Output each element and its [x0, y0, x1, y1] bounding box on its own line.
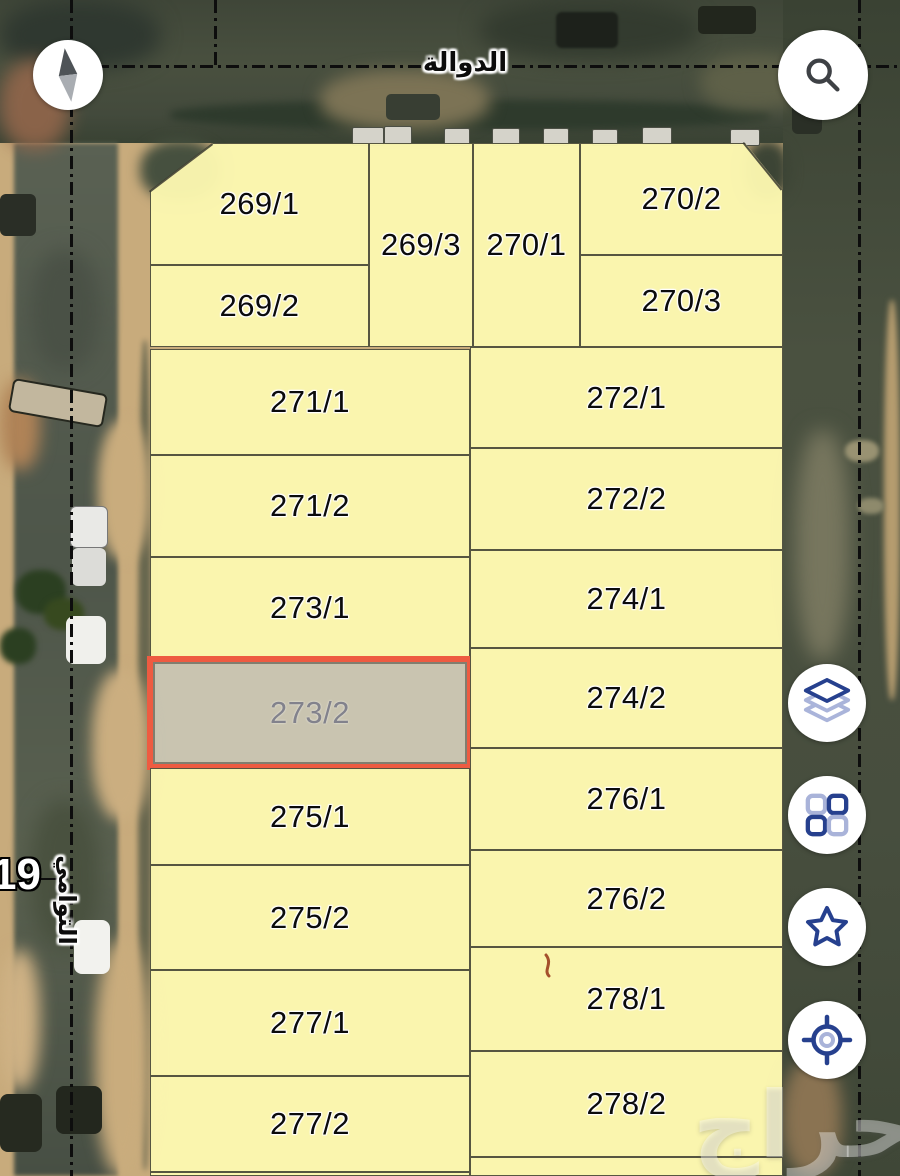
- parcel-271-2[interactable]: 271/2: [150, 455, 470, 557]
- car: [698, 6, 756, 34]
- car: [556, 12, 618, 48]
- parcel-label: 278/1: [586, 981, 666, 1017]
- boundary-line-left: [70, 0, 73, 1176]
- parcel-270-3[interactable]: 270/3: [580, 255, 783, 347]
- parcel-label: 272/1: [586, 380, 666, 416]
- parcel-label: 275/2: [270, 900, 350, 936]
- parcel-label: 277/1: [270, 1005, 350, 1041]
- parcel-273-2-selected[interactable]: 273/2: [147, 656, 473, 770]
- parcel-269-2[interactable]: 269/2: [150, 265, 369, 347]
- parcel-label: 274/2: [586, 680, 666, 716]
- terrain-rock: [845, 440, 879, 462]
- terrain-patch: [92, 670, 150, 820]
- car: [70, 506, 108, 548]
- parcel-label: 271/2: [270, 488, 350, 524]
- terrain-patch: [795, 430, 850, 660]
- layers-button[interactable]: [788, 664, 866, 742]
- terrain-patch: [30, 250, 100, 370]
- boundary-line-right: [858, 0, 861, 1176]
- parcel-label: 271/1: [270, 384, 350, 420]
- parcel-label: 277/2: [270, 1106, 350, 1142]
- street-number-label: 19: [0, 850, 52, 900]
- car: [56, 1086, 102, 1134]
- map-canvas[interactable]: 269/1 269/2 269/3 270/1 270/2 270/3 271/…: [0, 0, 900, 1176]
- map-scribble-mark: [540, 952, 556, 978]
- car: [0, 1094, 42, 1152]
- grid-button[interactable]: [788, 776, 866, 854]
- parcel-270-1[interactable]: 270/1: [473, 143, 580, 347]
- parcel-270-2[interactable]: 270/2: [580, 143, 783, 255]
- boundary-line-top-stub: [214, 0, 217, 66]
- parcel-272-1[interactable]: 272/1: [470, 347, 783, 448]
- compass-icon: [50, 44, 87, 105]
- parcel-label: 273/2: [270, 695, 350, 731]
- search-icon: [800, 52, 846, 98]
- parcel-label: 275/1: [270, 799, 350, 835]
- tree: [0, 628, 36, 664]
- parcel-273-1[interactable]: 273/1: [150, 557, 470, 659]
- parcel-274-2[interactable]: 274/2: [470, 648, 783, 748]
- grid-icon: [804, 792, 850, 838]
- parcel-label: 274/1: [586, 581, 666, 617]
- star-button[interactable]: [788, 888, 866, 966]
- car: [72, 548, 106, 586]
- terrain-patch: [0, 950, 40, 1090]
- car: [0, 194, 36, 236]
- parcel-label: 270/1: [486, 227, 566, 263]
- parcel-sliver-left: [150, 1172, 470, 1176]
- parcel-277-1[interactable]: 277/1: [150, 970, 470, 1076]
- parcel-277-2[interactable]: 277/2: [150, 1076, 470, 1172]
- locate-icon: [801, 1014, 853, 1066]
- parcel-269-3[interactable]: 269/3: [369, 143, 473, 347]
- compass-button[interactable]: [33, 40, 103, 110]
- watermark-logo: حراج: [634, 1072, 900, 1176]
- parcel-275-2[interactable]: 275/2: [150, 865, 470, 970]
- layers-icon: [800, 678, 854, 728]
- parcel-label: 272/2: [586, 481, 666, 517]
- parcel-label: 269/3: [381, 227, 461, 263]
- street-label-left: التوامي: [51, 840, 81, 960]
- parcel-274-1[interactable]: 274/1: [470, 550, 783, 648]
- terrain-patch: [884, 300, 900, 700]
- car: [386, 94, 440, 120]
- star-icon: [803, 904, 851, 950]
- street-label-top: الدوالة: [385, 48, 545, 78]
- parcel-label: 269/1: [219, 186, 299, 222]
- search-button[interactable]: [778, 30, 868, 120]
- parked-car: [642, 127, 672, 145]
- parcel-272-2[interactable]: 272/2: [470, 448, 783, 550]
- parcel-label: 276/2: [586, 881, 666, 917]
- parcel-271-1[interactable]: 271/1: [150, 349, 470, 455]
- parcel-label: 270/3: [641, 283, 721, 319]
- parcel-label: 269/2: [219, 288, 299, 324]
- parcel-label: 276/1: [586, 781, 666, 817]
- terrain-rock: [858, 498, 884, 514]
- parcel-275-1[interactable]: 275/1: [150, 768, 470, 865]
- parcel-label: 270/2: [641, 181, 721, 217]
- terrain-patch: [95, 940, 150, 1176]
- parcel-278-1[interactable]: 278/1: [470, 947, 783, 1051]
- locate-button[interactable]: [788, 1001, 866, 1079]
- parcel-label: 273/1: [270, 590, 350, 626]
- parcel-276-2[interactable]: 276/2: [470, 850, 783, 947]
- parcel-276-1[interactable]: 276/1: [470, 748, 783, 850]
